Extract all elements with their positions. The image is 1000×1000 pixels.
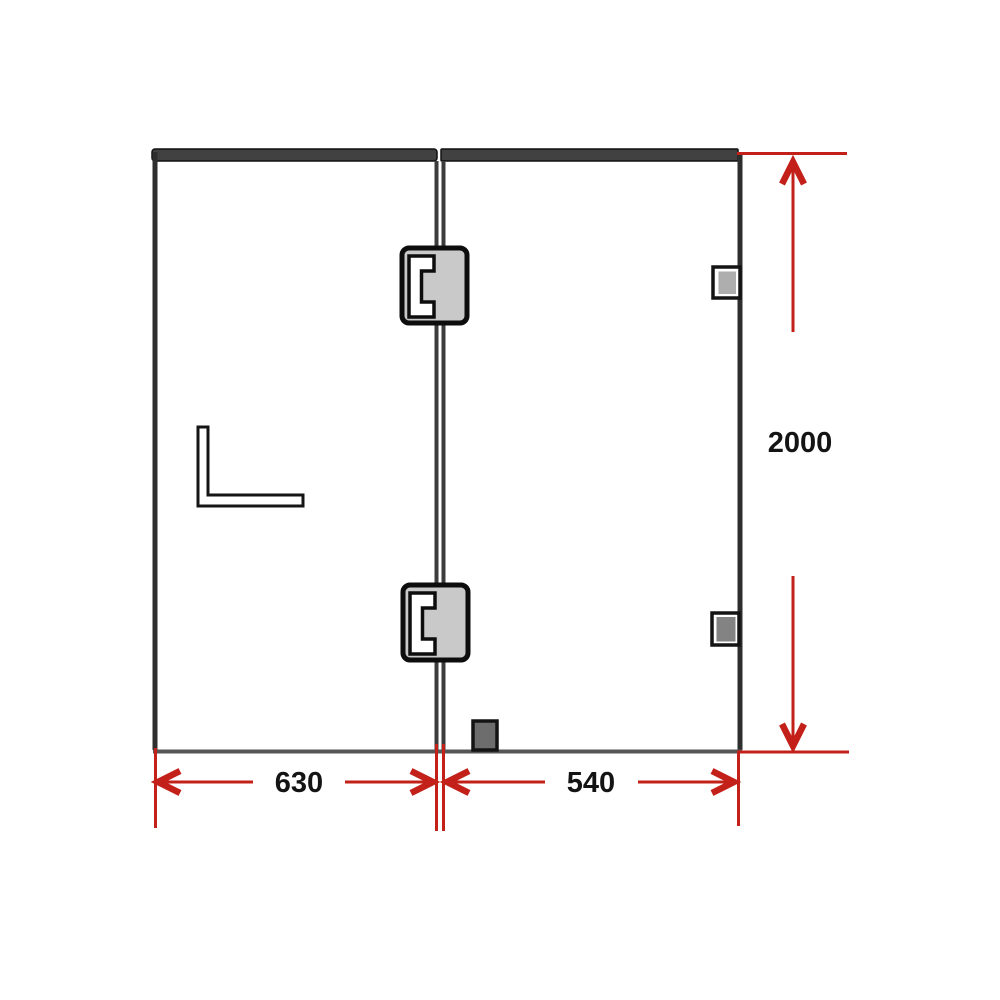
dimension-label-right-width: 540	[567, 767, 615, 799]
wall-bracket-lower-icon	[712, 613, 739, 645]
floor-bracket-icon	[473, 721, 497, 750]
height-dimension: 2000	[768, 162, 833, 746]
diagram-canvas: 630 540 2000	[0, 0, 1000, 1000]
l-bracket-icon	[198, 427, 303, 506]
wall-bracket-upper-icon	[713, 267, 740, 298]
width-dimension-left-panel: 630	[158, 767, 433, 799]
glass-hinge-bottom-icon	[403, 585, 468, 660]
dimension-label-left-width: 630	[275, 767, 323, 799]
top-rail-left-segment	[152, 149, 437, 161]
dimension-label-height: 2000	[768, 427, 833, 459]
dimension-annotations: 630 540 2000	[156, 154, 850, 832]
width-dimension-right-panel: 540	[447, 767, 734, 799]
shower-screen-diagram: 630 540 2000	[0, 0, 1000, 1000]
top-rail-right-segment	[441, 149, 738, 161]
glass-hinge-top-icon	[402, 248, 467, 323]
bracket-pad	[717, 617, 736, 642]
bracket-pad	[719, 272, 737, 295]
